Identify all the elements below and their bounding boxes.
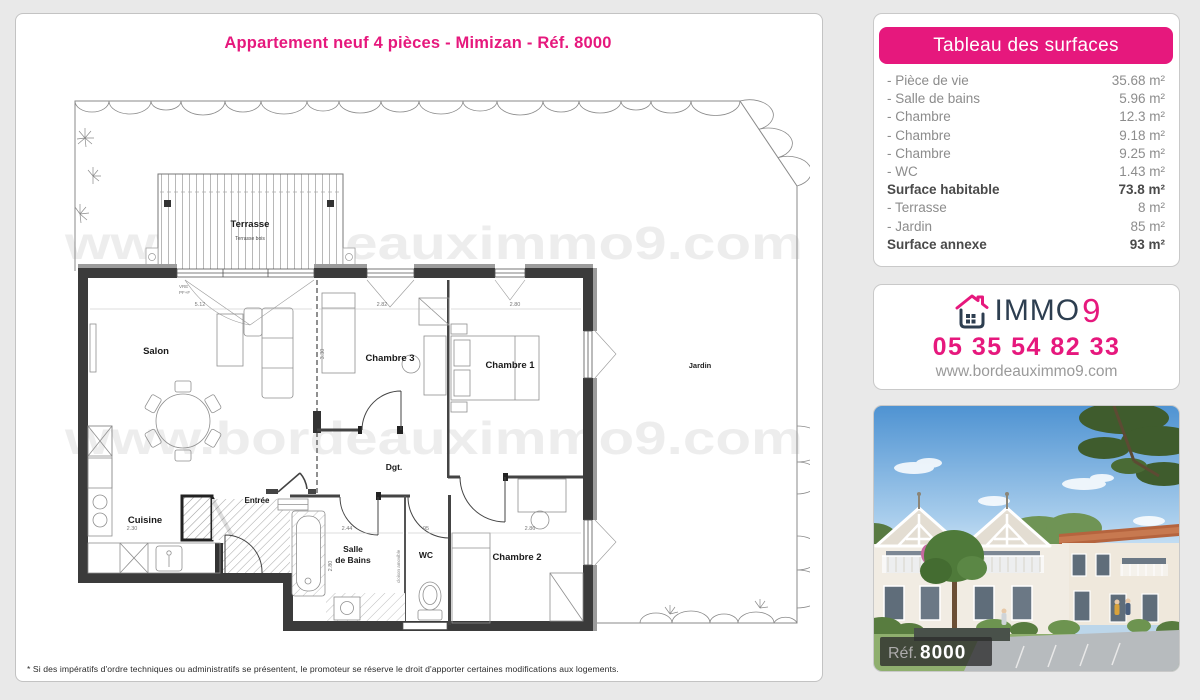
cloison-label: cloison amovible [396,549,401,583]
footnote: * Si des impératifs d'ordre techniques o… [27,664,807,674]
svg-text:2.82: 2.82 [377,302,388,308]
svg-text:3.30: 3.30 [320,349,326,360]
svg-text:VRE: VRE [179,284,188,289]
surface-row: - Chambre9.25 m² [887,145,1165,163]
svg-text:5.12: 5.12 [195,302,206,308]
ref-value: 8000 [920,643,966,664]
toilet [418,582,442,620]
svg-text:95: 95 [423,526,429,532]
agency-card: IMMO9 05 35 54 82 33 www.bordeauximmo9.c… [873,284,1180,390]
radiator [90,324,96,372]
agency-logo: IMMO9 [952,291,1100,331]
svg-text:2.80: 2.80 [328,561,334,572]
desk-chambre2 [518,479,566,512]
room-label-chambre1: Chambre 1 [485,360,535,371]
room-label-dgt: Dgt. [386,462,403,472]
room-label-sdb2: de Bains [335,555,371,565]
house-icon [952,291,992,331]
surfaces-header: Tableau des surfaces [879,27,1173,64]
room-label-jardin: Jardin [689,361,712,370]
surface-row: - Terrasse8 m² [887,199,1165,217]
ref-badge: Réf. 8000 [880,637,992,666]
floor-plan: www.bordeauximmo9.com www.bordeauximmo9.… [60,96,810,636]
bed-chambre3 [322,293,355,373]
brand-immo: IMMO [994,294,1080,328]
surface-row: - WC1.43 m² [887,163,1165,181]
agency-phone: 05 35 54 82 33 [933,333,1121,362]
svg-text:PF+F: PF+F [179,290,190,295]
room-label-entree: Entrée [245,496,270,505]
room-label-wc: WC [419,550,433,560]
washbasin [334,597,360,620]
svg-text:2.30: 2.30 [127,526,138,532]
sofa [244,308,293,398]
room-label-chambre2: Chambre 2 [492,552,541,563]
surface-row: - Jardin85 m² [887,218,1165,236]
surfaces-panel: Tableau des surfaces - Pièce de vie35.68… [873,13,1180,267]
surfaces-table: - Pièce de vie35.68 m² - Salle de bains5… [874,68,1179,254]
room-label-terrasse-sub: Terrasse bois [235,236,265,242]
svg-text:2.86: 2.86 [525,526,536,532]
surface-row-total-annexe: Surface annexe93 m² [887,236,1165,254]
surface-row-total-habitable: Surface habitable73.8 m² [887,181,1165,199]
terrace: Terrasse Terrasse bois [146,174,355,270]
ref-label: Réf. [888,645,917,662]
svg-text:2.44: 2.44 [342,526,353,532]
bed-chambre2 [452,533,490,623]
surface-row: - Pièce de vie35.68 m² [887,72,1165,90]
room-label-salon: Salon [143,346,169,357]
desk-chambre3 [424,336,446,395]
residence-photo: Réf. 8000 [873,405,1180,672]
room-label-chambre3: Chambre 3 [365,353,414,364]
room-label-sdb1: Salle [343,544,363,554]
agency-website-link[interactable]: www.bordeauximmo9.com [936,363,1118,381]
surface-row: - Salle de bains5.96 m² [887,90,1165,108]
bathtub [292,511,325,596]
coffee-table [217,314,243,366]
svg-text:2.80: 2.80 [510,302,521,308]
residence-rendering: Réf. 8000 [874,406,1179,671]
room-label-terrasse: Terrasse [231,219,270,230]
surface-row: - Chambre9.18 m² [887,127,1165,145]
surface-row: - Chambre12.3 m² [887,108,1165,126]
brand-nine: 9 [1082,292,1100,330]
room-label-cuisine: Cuisine [128,515,162,526]
page-title: Appartement neuf 4 pièces - Mimizan - Ré… [15,34,821,53]
